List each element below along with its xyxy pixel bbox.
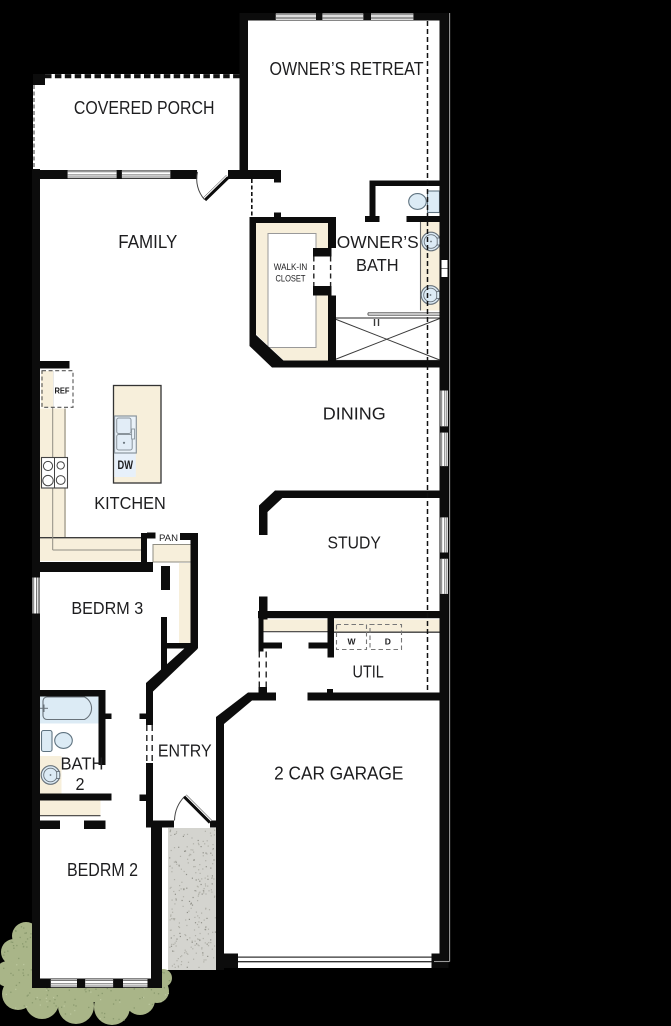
svg-text:2 CAR GARAGE: 2 CAR GARAGE [274, 764, 403, 784]
svg-text:ENTRY: ENTRY [158, 741, 212, 761]
svg-text:UTIL: UTIL [353, 662, 385, 682]
svg-text:KITCHEN: KITCHEN [94, 493, 166, 513]
svg-text:BATH: BATH [61, 754, 104, 774]
svg-text:BEDRM 3: BEDRM 3 [71, 598, 143, 618]
svg-text:BEDRM 2: BEDRM 2 [67, 860, 138, 880]
svg-text:COVERED PORCH: COVERED PORCH [74, 98, 215, 118]
svg-text:OWNER’S: OWNER’S [337, 232, 419, 252]
svg-text:WALK-IN: WALK-IN [274, 262, 308, 272]
svg-text:W: W [347, 637, 356, 647]
svg-text:D: D [385, 637, 391, 647]
svg-text:CLOSET: CLOSET [276, 273, 306, 283]
svg-text:BATH: BATH [356, 255, 399, 275]
svg-text:FAMILY: FAMILY [118, 232, 177, 252]
svg-text:2: 2 [76, 774, 85, 794]
svg-text:OWNER’S RETREAT: OWNER’S RETREAT [270, 58, 424, 79]
svg-text:REF: REF [55, 385, 70, 395]
svg-text:PAN: PAN [159, 533, 178, 544]
svg-text:STUDY: STUDY [328, 533, 382, 553]
svg-text:DW: DW [118, 460, 134, 472]
svg-text:DINING: DINING [323, 404, 386, 424]
